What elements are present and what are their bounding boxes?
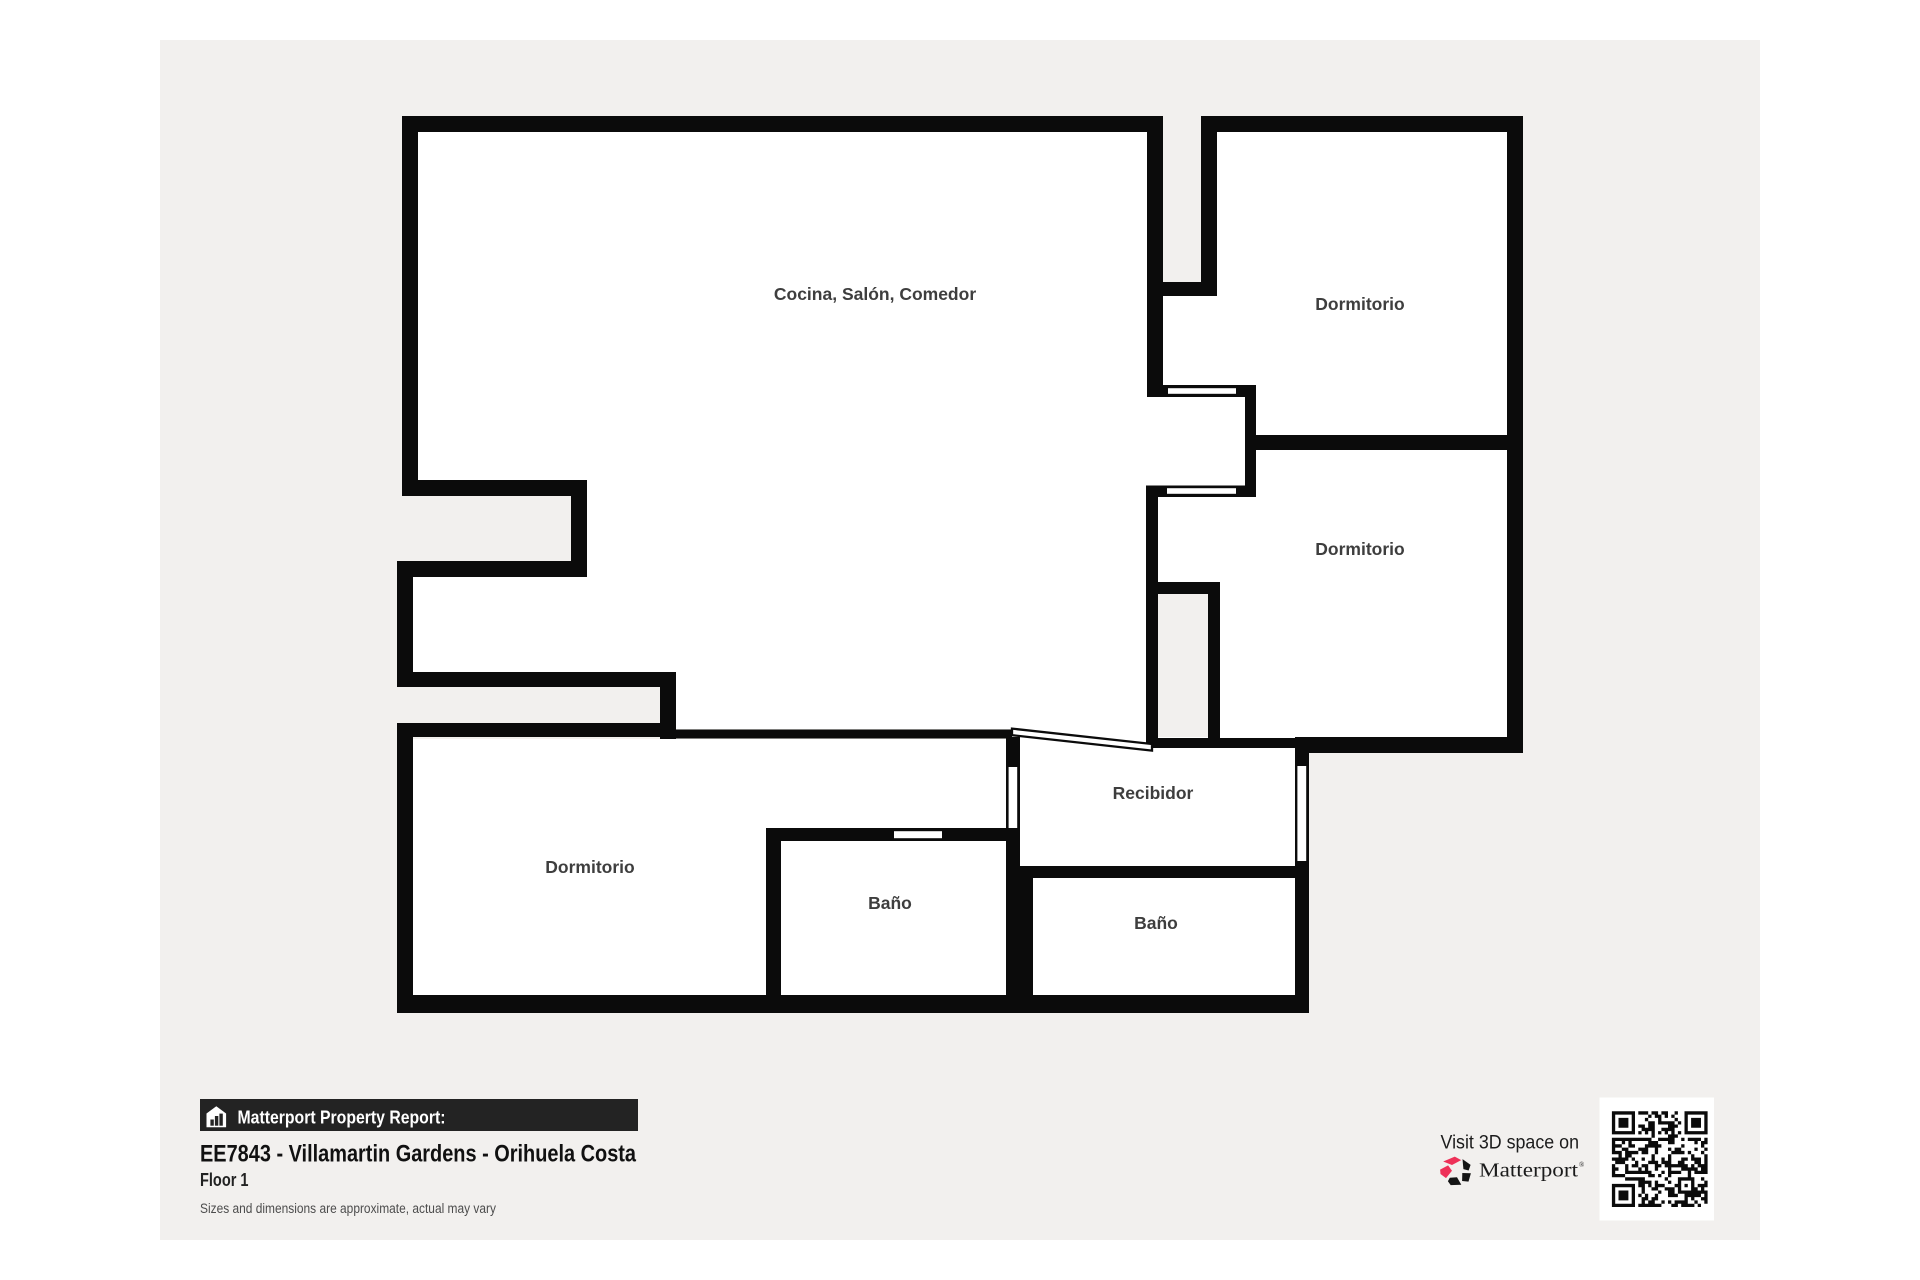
svg-text:Matterport Property Report:: Matterport Property Report:: [238, 1107, 446, 1128]
svg-text:®: ®: [1579, 1161, 1585, 1169]
svg-text:Dormitorio: Dormitorio: [1315, 294, 1404, 314]
svg-text:EE7843 - Villamartin Gardens -: EE7843 - Villamartin Gardens - Orihuela …: [200, 1141, 637, 1168]
svg-text:Baño: Baño: [868, 893, 912, 913]
svg-text:Recibidor: Recibidor: [1113, 783, 1194, 803]
svg-text:Dormitorio: Dormitorio: [1315, 539, 1404, 559]
svg-text:Floor 1: Floor 1: [200, 1169, 249, 1190]
svg-text:Dormitorio: Dormitorio: [545, 857, 634, 877]
svg-text:Matterport: Matterport: [1479, 1160, 1579, 1182]
svg-text:Sizes and dimensions are appro: Sizes and dimensions are approximate, ac…: [200, 1201, 496, 1216]
svg-text:Cocina, Salón, Comedor: Cocina, Salón, Comedor: [774, 284, 976, 304]
svg-text:Baño: Baño: [1134, 913, 1178, 933]
svg-text:Visit 3D space on: Visit 3D space on: [1441, 1131, 1580, 1153]
